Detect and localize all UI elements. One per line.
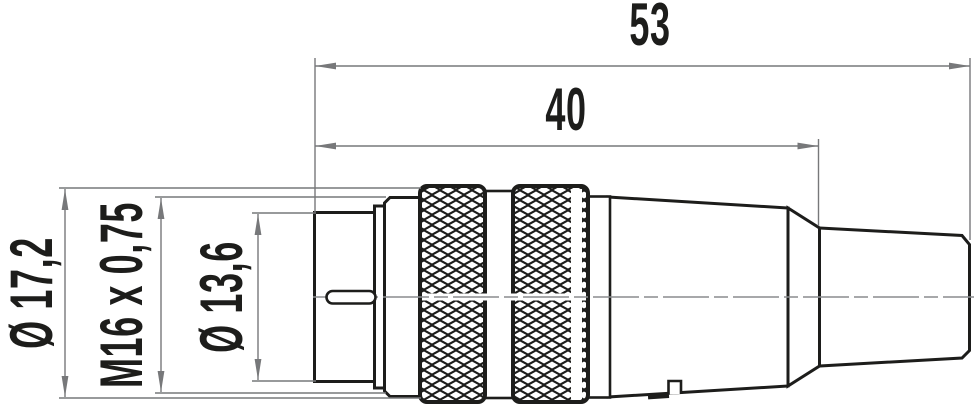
dim-label-overall-length: 53 [629, 0, 670, 58]
dim-label-front-length: 40 [545, 77, 586, 144]
technical-drawing-canvas: 53 40 Ø 17,2 M16 x 0,75 Ø 13,6 [0, 0, 975, 407]
dim-label-thread: M16 x 0,75 [89, 202, 156, 388]
keyway-slot [327, 291, 376, 304]
dim-label-outer-diameter: Ø 17,2 [0, 237, 65, 349]
dim-label-mating-diameter: Ø 13,6 [189, 241, 256, 353]
connector-dimension-drawing: 53 40 Ø 17,2 M16 x 0,75 Ø 13,6 [0, 0, 975, 407]
connector-body [315, 191, 970, 398]
